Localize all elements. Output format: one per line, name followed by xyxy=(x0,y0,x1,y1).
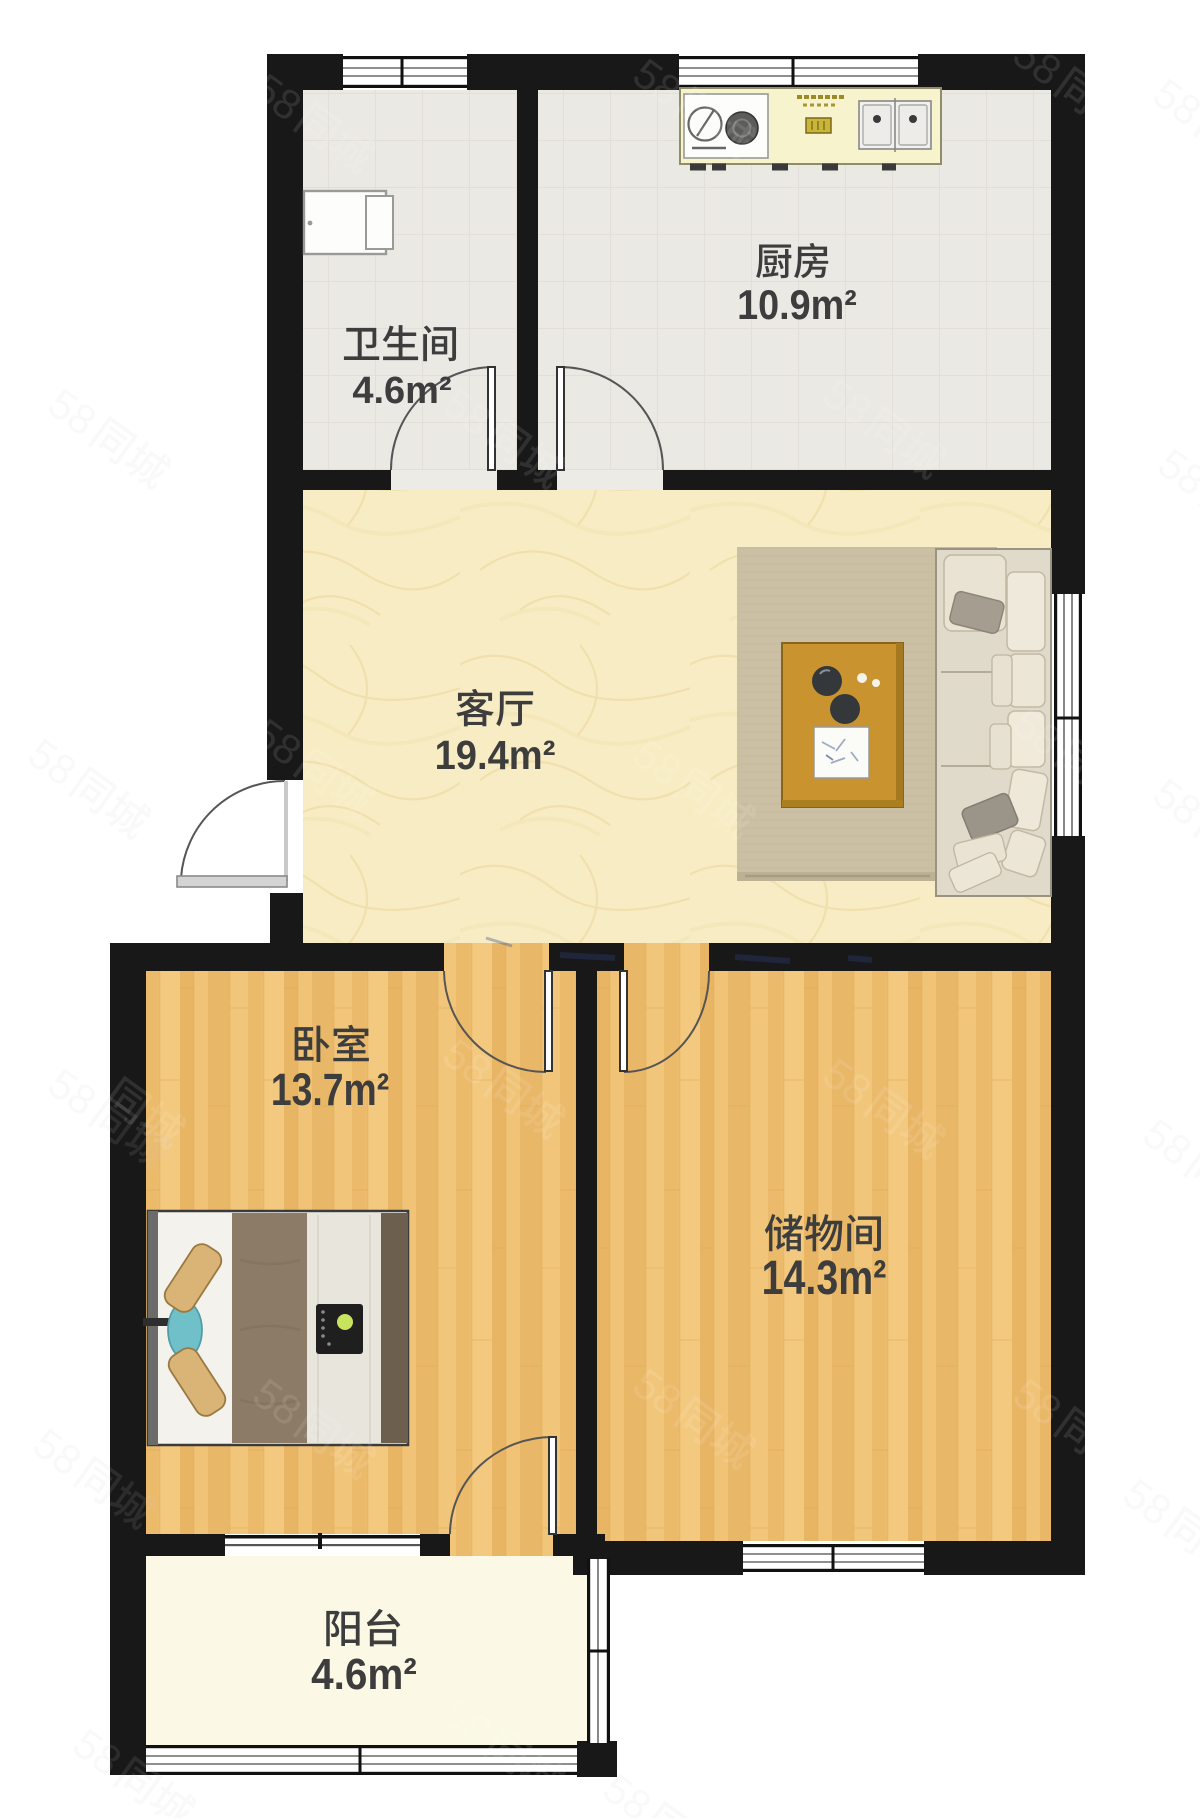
svg-text:10.9m²: 10.9m² xyxy=(737,282,857,328)
svg-text:4.6m²: 4.6m² xyxy=(311,1649,417,1698)
svg-text:14.3m²: 14.3m² xyxy=(762,1251,887,1305)
svg-text:19.4m²: 19.4m² xyxy=(435,733,556,779)
svg-text:13.7m²: 13.7m² xyxy=(271,1065,389,1115)
svg-text:4.6m²: 4.6m² xyxy=(352,370,451,412)
